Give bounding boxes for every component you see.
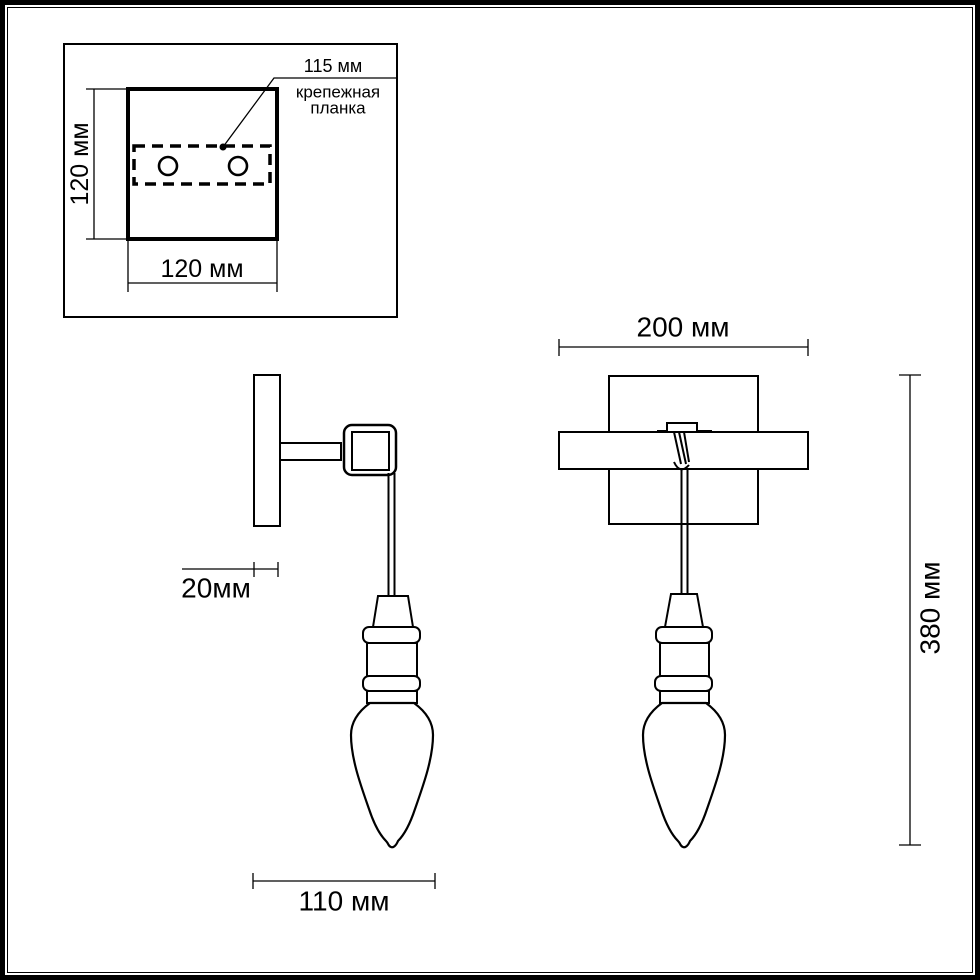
technical-drawing-page: 120 мм 120 мм 115 мм крепежная планка <box>0 0 980 980</box>
screw-hole-left <box>159 157 177 175</box>
socket-cone-front <box>665 594 703 627</box>
bulb-front <box>643 703 725 847</box>
arm-side <box>280 443 341 460</box>
cord-side <box>389 473 395 596</box>
plate-height-label: 120 мм <box>66 122 94 205</box>
screw-hole-right <box>229 157 247 175</box>
front-view: 200 мм 380 мм <box>559 312 946 848</box>
bar-width-label: 200 мм <box>637 312 730 343</box>
backplate-rear-view <box>128 89 277 239</box>
socket-neck-front <box>660 691 709 703</box>
socket-collar-bottom-front <box>655 676 712 691</box>
socket-collar-top-side <box>363 627 420 643</box>
socket-collar-bottom-side <box>363 676 420 691</box>
socket-body-side <box>367 643 417 677</box>
plate-depth-label: 20мм <box>181 573 251 604</box>
leader-dot <box>220 144 227 151</box>
holes-spacing-label: 115 мм <box>304 56 362 76</box>
socket-neck-side <box>367 691 417 703</box>
plate-width-label: 120 мм <box>160 255 243 283</box>
socket-collar-top-front <box>656 627 712 643</box>
mounting-plate-detail-panel: 120 мм 120 мм 115 мм крепежная планка <box>64 44 397 317</box>
lamp-dimension-drawing: 120 мм 120 мм 115 мм крепежная планка <box>0 0 980 980</box>
bulb-side <box>351 703 433 847</box>
wall-plate-side <box>254 375 280 526</box>
projection-label: 110 мм <box>299 886 390 917</box>
total-height-label: 380 мм <box>915 562 946 655</box>
side-view: 20мм 110 мм <box>181 375 435 917</box>
socket-cone-side <box>373 596 413 627</box>
bracket-caption-line2: планка <box>310 99 366 118</box>
socket-body-front <box>660 643 709 677</box>
